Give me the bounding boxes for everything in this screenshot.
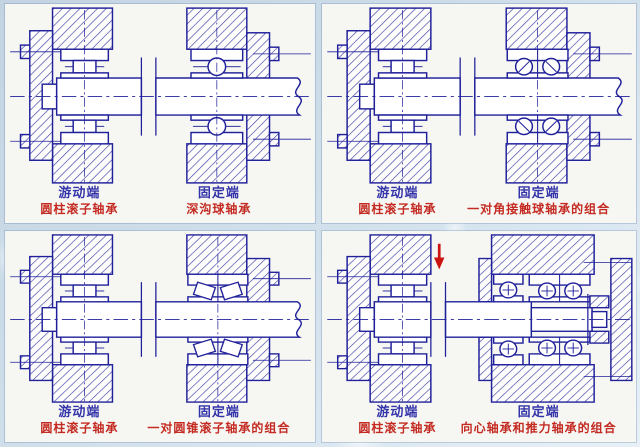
fixed-end-label-group: 固定端 向心轴承和推力轴承的组合 xyxy=(461,406,617,436)
fixed-end-role: 固定端 xyxy=(147,406,290,421)
floating-end-bearing-name: 圆柱滚子轴承 xyxy=(40,203,118,217)
fixed-end-bearing-name: 一对圆锥滚子轴承的组合 xyxy=(147,422,290,436)
panel-labels: 游动端 圆柱滚子轴承 固定端 深沟球轴承 xyxy=(5,187,315,223)
fixed-end-label-group: 固定端 一对角接触球轴承的组合 xyxy=(467,187,610,217)
panel-deep-groove-ball: 游动端 圆柱滚子轴承 固定端 深沟球轴承 xyxy=(5,4,315,223)
bearing-arrangement-diagram xyxy=(322,231,636,406)
fixed-end-bearing-name: 一对角接触球轴承的组合 xyxy=(467,203,610,217)
stage: 游动端 圆柱滚子轴承 固定端 深沟球轴承 游动端 圆柱滚子轴承 固定端 一对角接… xyxy=(0,0,640,447)
bearing-arrangement-diagram xyxy=(5,4,315,187)
floating-end-role: 游动端 xyxy=(358,406,436,421)
panel-tapered-roller-pair: 游动端 圆柱滚子轴承 固定端 一对圆锥滚子轴承的组合 xyxy=(5,231,315,442)
fixed-end-role: 固定端 xyxy=(461,406,617,421)
panel-labels: 游动端 圆柱滚子轴承 固定端 一对圆锥滚子轴承的组合 xyxy=(5,406,315,442)
floating-end-bearing-name: 圆柱滚子轴承 xyxy=(358,203,436,217)
panel-labels: 游动端 圆柱滚子轴承 固定端 向心轴承和推力轴承的组合 xyxy=(322,406,636,442)
panel-angular-contact-pair: 游动端 圆柱滚子轴承 固定端 一对角接触球轴承的组合 xyxy=(322,4,636,223)
floating-end-role: 游动端 xyxy=(40,187,118,202)
floating-end-bearing-name: 圆柱滚子轴承 xyxy=(358,422,436,436)
floating-end-label-group: 游动端 圆柱滚子轴承 xyxy=(40,406,118,436)
floating-end-label-group: 游动端 圆柱滚子轴承 xyxy=(358,406,436,436)
floating-end-bearing-name: 圆柱滚子轴承 xyxy=(40,422,118,436)
fixed-end-label-group: 固定端 深沟球轴承 xyxy=(186,187,251,217)
bearing-arrangement-diagram xyxy=(322,4,636,187)
fixed-end-role: 固定端 xyxy=(186,187,251,202)
load-arrow-icon xyxy=(434,244,444,270)
floating-end-label-group: 游动端 圆柱滚子轴承 xyxy=(40,187,118,217)
panel-radial-thrust-combo: 游动端 圆柱滚子轴承 固定端 向心轴承和推力轴承的组合 xyxy=(322,231,636,442)
panel-labels: 游动端 圆柱滚子轴承 固定端 一对角接触球轴承的组合 xyxy=(322,187,636,223)
fixed-end-bearing-name: 向心轴承和推力轴承的组合 xyxy=(461,422,617,436)
fixed-end-role: 固定端 xyxy=(467,187,610,202)
fixed-end-bearing-name: 深沟球轴承 xyxy=(186,203,251,217)
fixed-end-label-group: 固定端 一对圆锥滚子轴承的组合 xyxy=(147,406,290,436)
floating-end-role: 游动端 xyxy=(40,406,118,421)
floating-end-label-group: 游动端 圆柱滚子轴承 xyxy=(358,187,436,217)
bearing-arrangement-diagram xyxy=(5,231,315,406)
floating-end-role: 游动端 xyxy=(358,187,436,202)
